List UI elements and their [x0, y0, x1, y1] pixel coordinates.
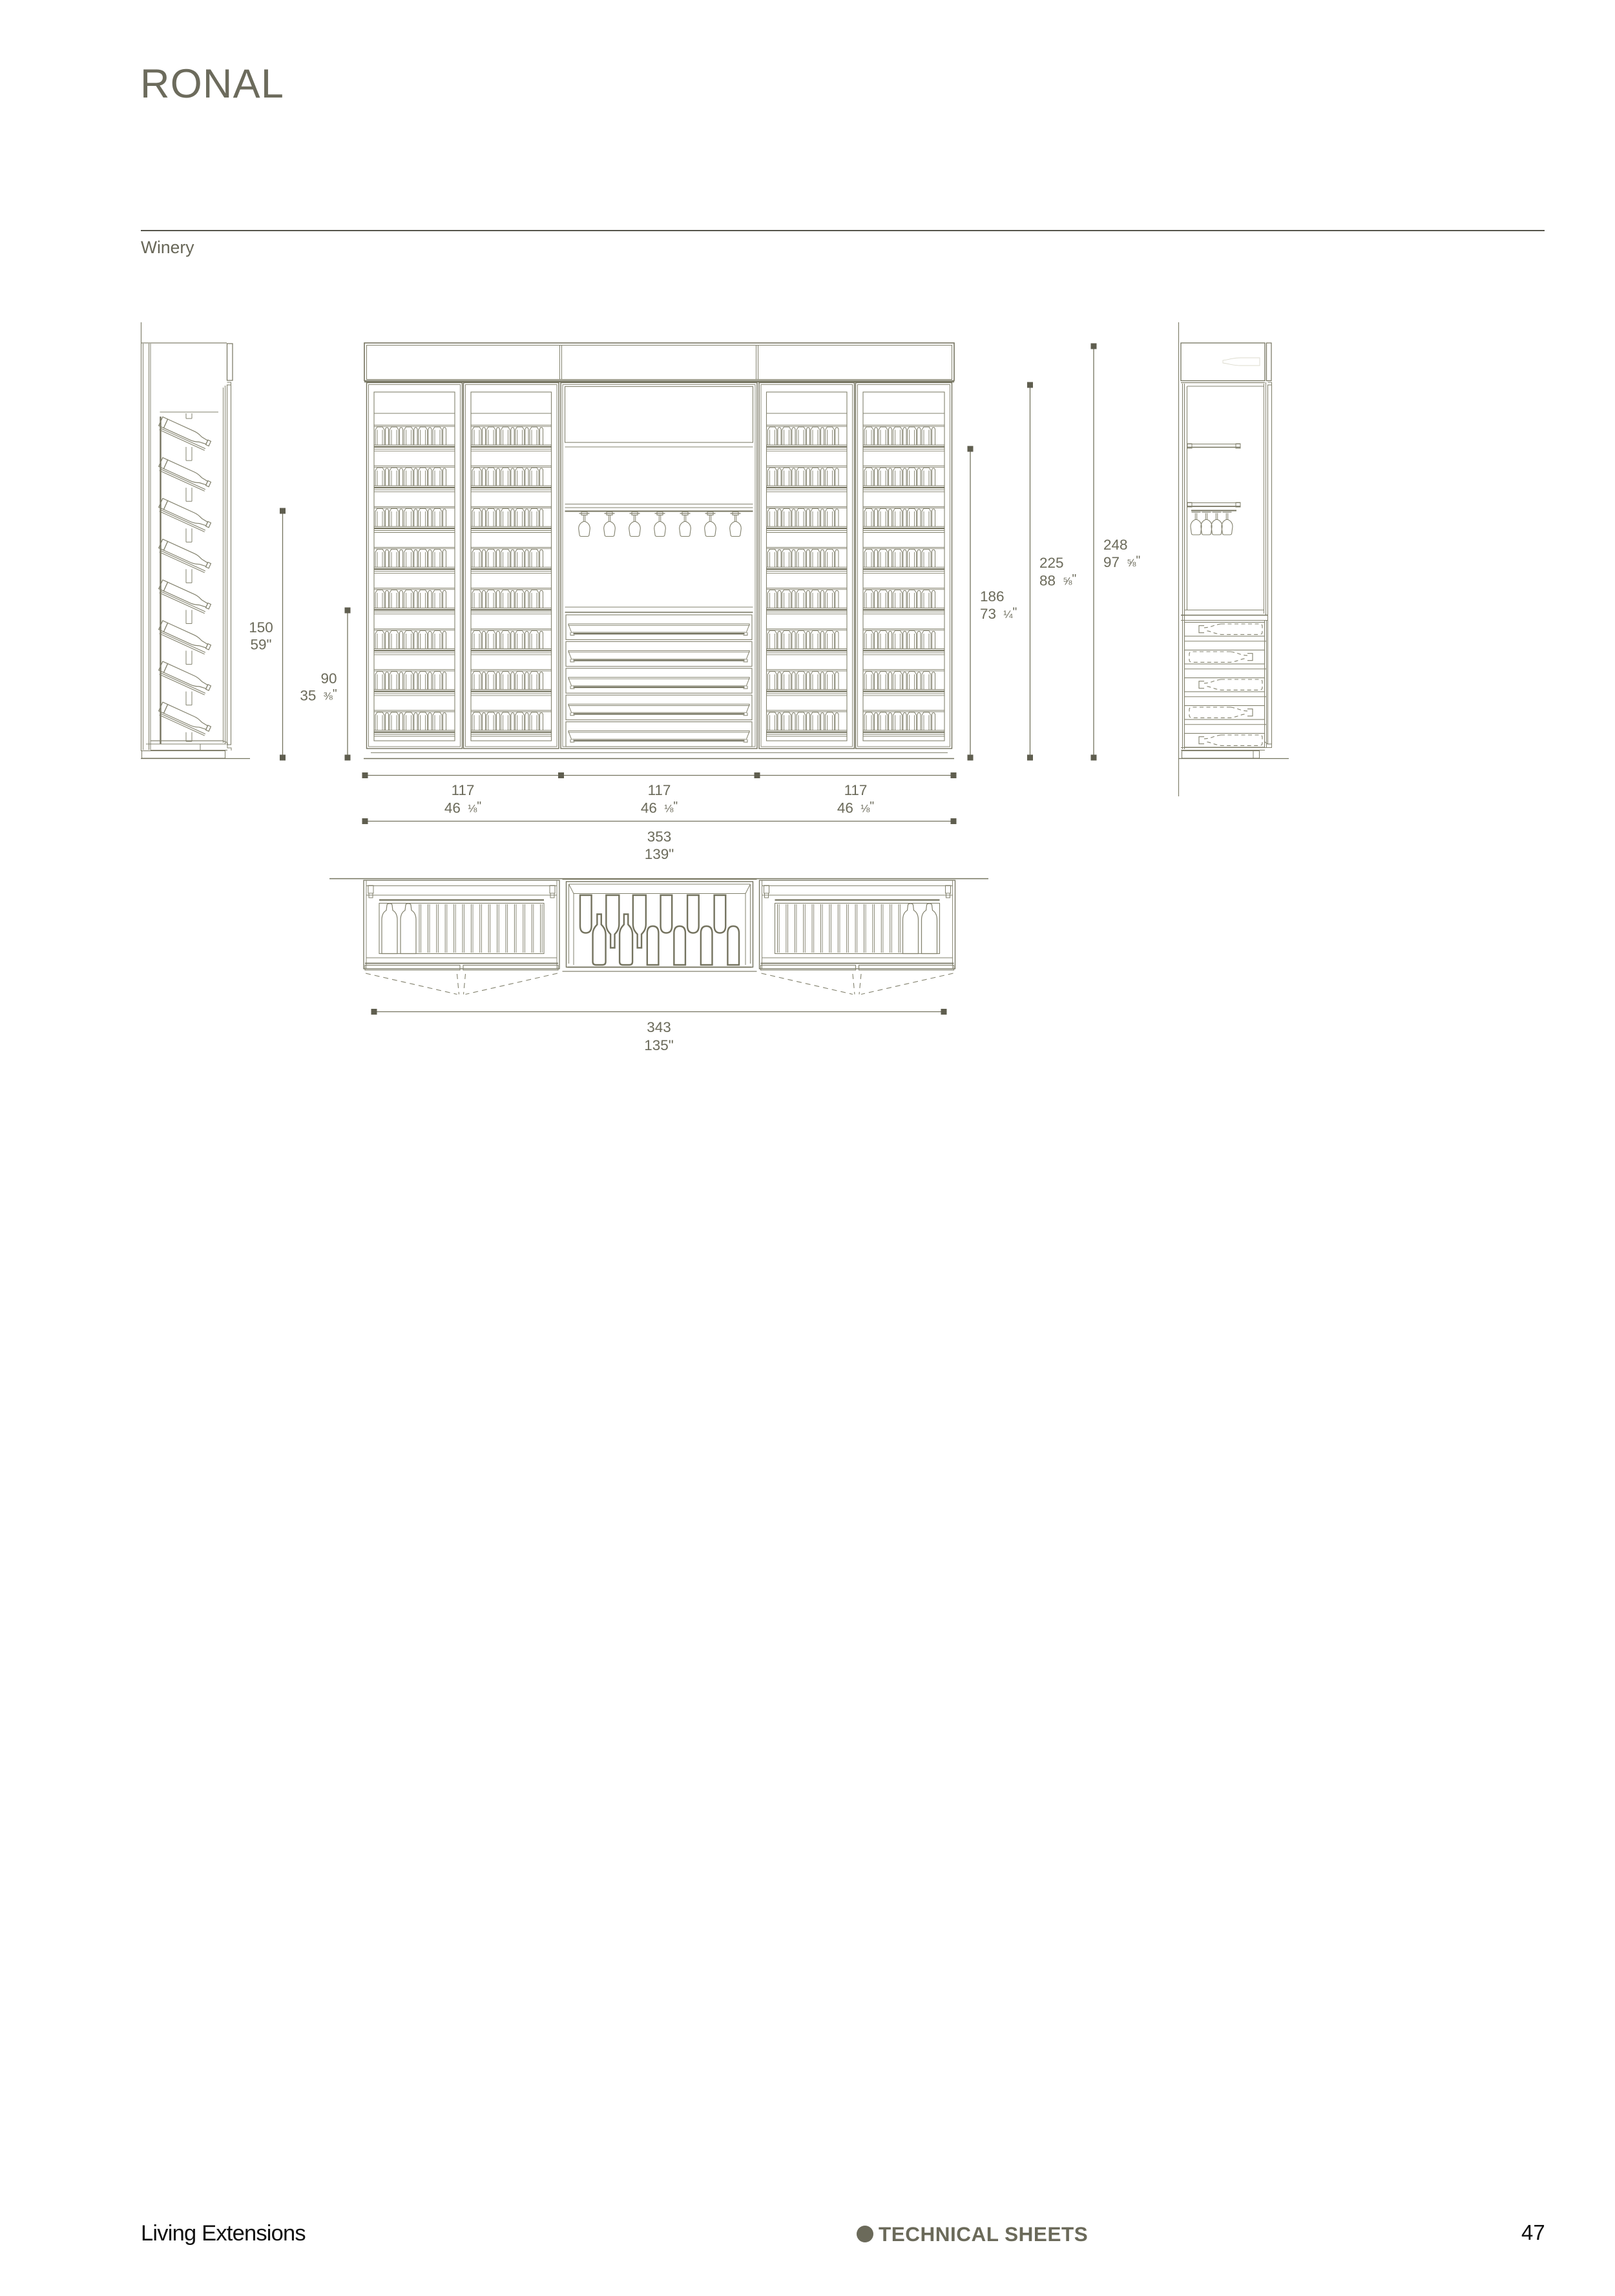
svg-text:135": 135": [644, 1037, 674, 1053]
svg-text:46 ⅛": 46 ⅛": [444, 800, 481, 816]
svg-text:88 ⅝": 88 ⅝": [1039, 573, 1076, 589]
svg-text:343: 343: [647, 1019, 671, 1035]
svg-text:73 ¼": 73 ¼": [980, 606, 1017, 622]
svg-text:117: 117: [648, 782, 671, 798]
svg-text:46 ⅛": 46 ⅛": [641, 800, 678, 816]
svg-text:139": 139": [645, 846, 674, 862]
svg-text:186: 186: [980, 588, 1005, 605]
svg-text:46 ⅛": 46 ⅛": [837, 800, 874, 816]
svg-text:97 ⅝": 97 ⅝": [1103, 554, 1140, 570]
svg-text:117: 117: [452, 782, 475, 798]
svg-text:90: 90: [320, 670, 337, 687]
svg-text:225: 225: [1039, 555, 1064, 571]
svg-text:35 ⅜": 35 ⅜": [300, 688, 337, 704]
svg-text:117: 117: [844, 782, 868, 798]
svg-text:150: 150: [249, 619, 273, 636]
svg-text:353: 353: [647, 829, 672, 845]
svg-text:248: 248: [1103, 537, 1128, 553]
svg-text:59": 59": [250, 637, 271, 653]
